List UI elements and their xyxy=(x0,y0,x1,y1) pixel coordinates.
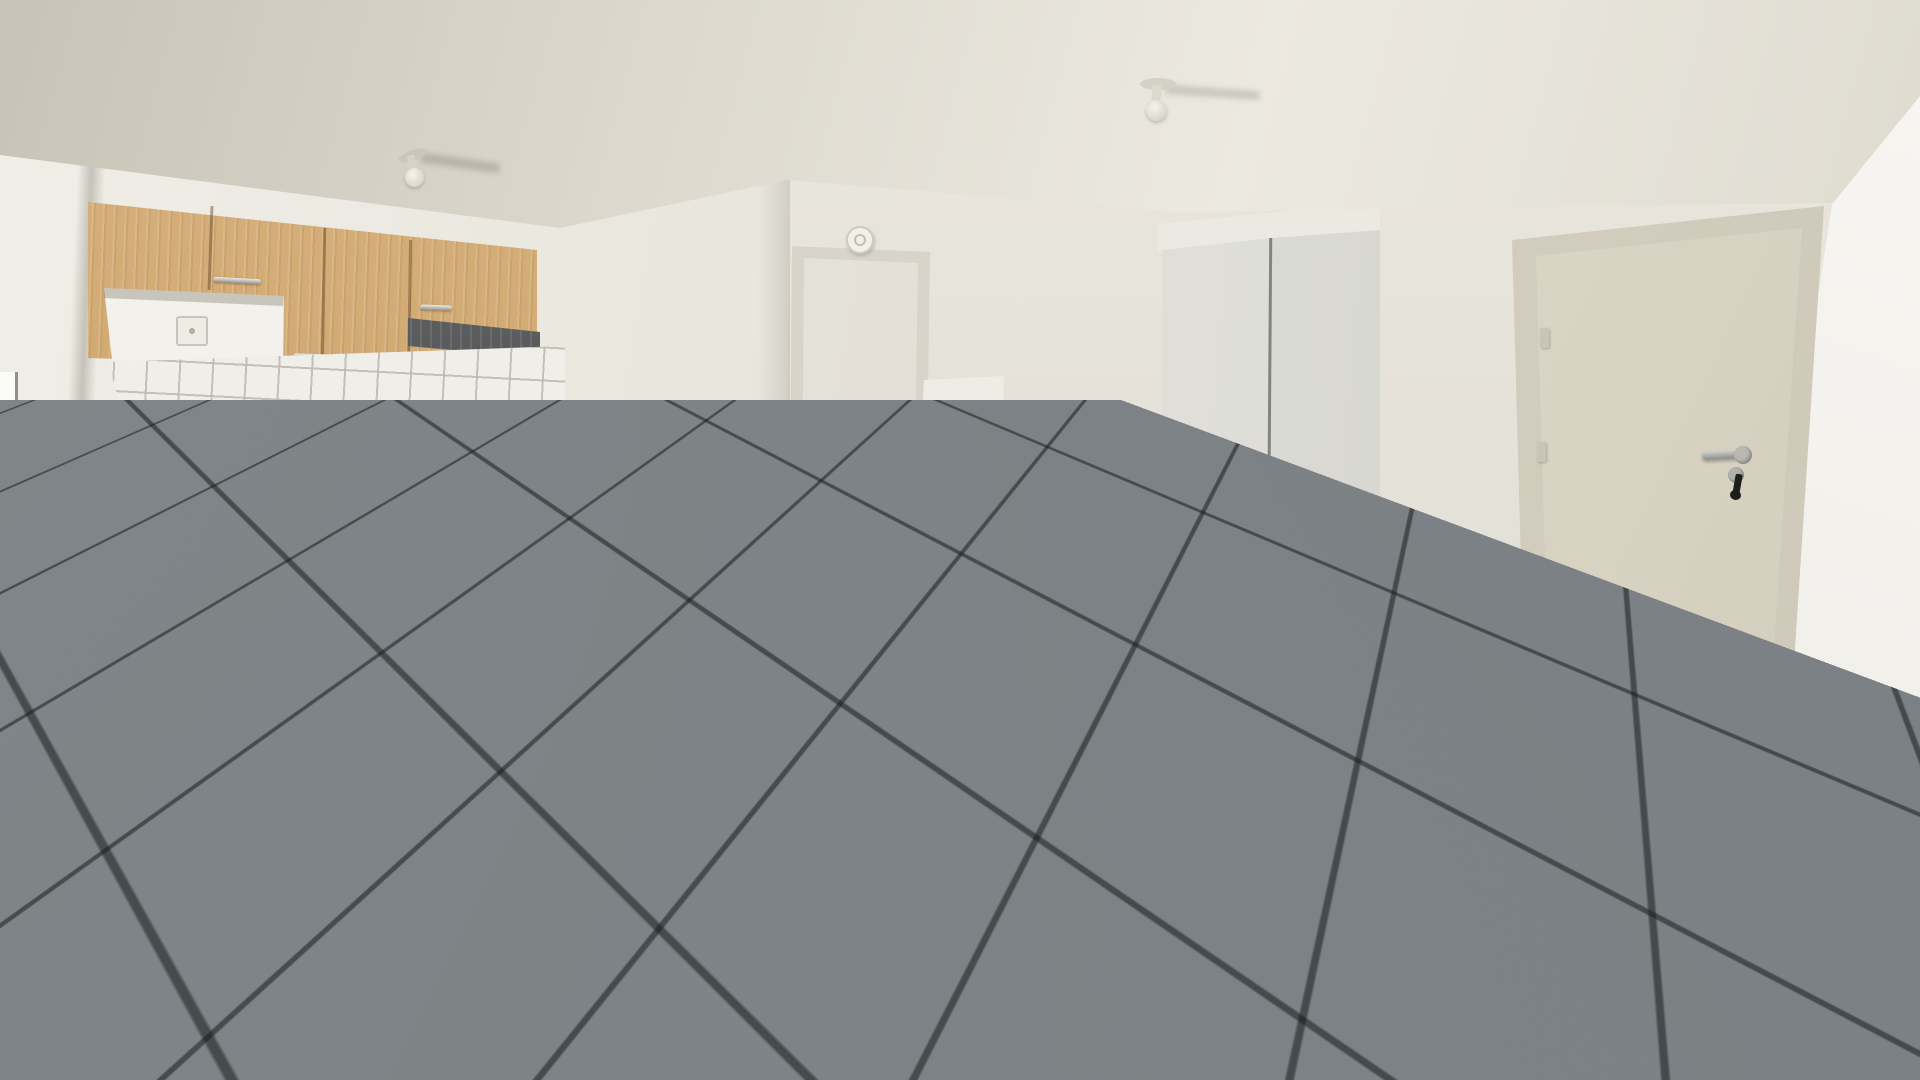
detector-ring xyxy=(854,234,866,246)
light-bulb xyxy=(1146,100,1167,121)
website-url: WWW.FCPI-IMMOBILIER.FR xyxy=(0,1030,1920,1054)
backsplash-outlet xyxy=(373,426,431,454)
window-frame-bar xyxy=(0,420,13,424)
fcpi-network-logo: FCPI RESEAU IMMOBILIER xyxy=(1606,886,1868,980)
door-stop xyxy=(1387,602,1399,617)
outlet-socket xyxy=(390,437,396,443)
light-switch xyxy=(768,416,787,433)
handle-rosette xyxy=(1734,446,1752,464)
light-switch xyxy=(768,434,787,451)
door-handle-rosette xyxy=(814,444,824,454)
logo-tag-immobilier: IMMOBILIER xyxy=(1787,962,1878,974)
light-bulb xyxy=(405,168,424,187)
logo-tag-reseau: RESEAU xyxy=(1686,962,1756,974)
hanging-cable xyxy=(438,478,518,588)
outlet-socket xyxy=(189,328,195,334)
cabinet-handle xyxy=(420,304,452,310)
intercom-cord xyxy=(1042,440,1078,470)
logo-wordmark: FCPI xyxy=(1714,900,1857,954)
door-hinge xyxy=(1537,442,1546,462)
socaf-divider xyxy=(186,983,232,985)
brand-title: FCPI xyxy=(0,772,1920,878)
wall-corner-shade xyxy=(758,178,790,510)
niche-outlet xyxy=(176,316,208,346)
socaf-label: SOCAF xyxy=(138,987,254,1011)
intercom-screen xyxy=(1035,414,1050,434)
window-edge xyxy=(0,372,18,484)
door-hinge xyxy=(1540,328,1549,348)
door-hinge xyxy=(1534,556,1543,576)
socaf-badge: SOCAF xyxy=(138,888,254,1011)
legal-line-2: SIRET : 81298608100014 - Carte Professio… xyxy=(0,979,1920,1000)
apartment-photo: FCPI IMMOBILIER FCPI PONTS JUMEAUX - 102… xyxy=(0,0,1920,1080)
smoke-detector xyxy=(846,226,874,254)
faucet-spout xyxy=(224,452,262,482)
outlet-socket xyxy=(408,437,414,443)
rooster-icon xyxy=(158,888,234,974)
intercom-handset xyxy=(1059,406,1071,442)
faucet-base xyxy=(240,488,258,494)
